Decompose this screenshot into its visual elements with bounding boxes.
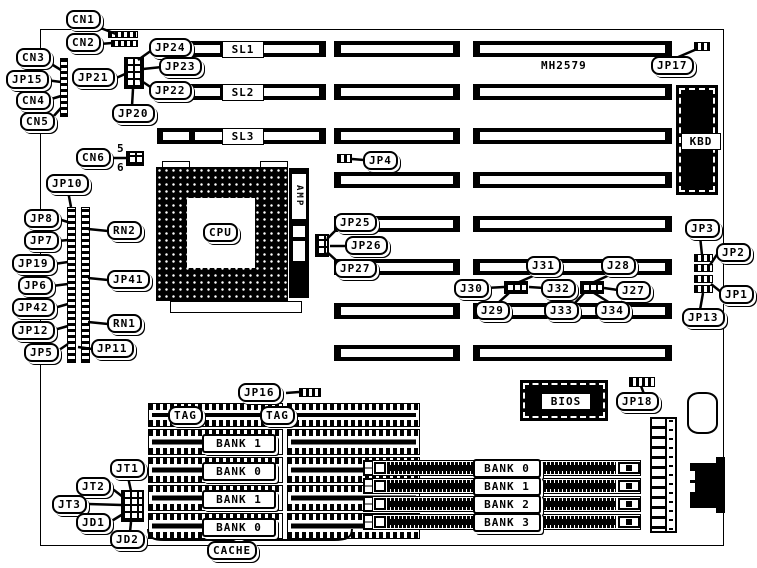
kbd-label: KBD <box>681 133 721 150</box>
callout-jp19: JP19 <box>12 254 55 273</box>
cache-tag-label: TAG <box>260 406 295 425</box>
simm-bank-label: BANK 3 <box>473 513 541 532</box>
callout-jp17: JP17 <box>651 56 694 75</box>
callout-jp27: JP27 <box>334 259 377 278</box>
callout-jp11: JP11 <box>91 339 134 358</box>
callout-rn2: RN2 <box>107 221 142 240</box>
slot-label-sl3: SL3 <box>222 128 264 145</box>
callout-j31: J31 <box>526 256 561 275</box>
callout-jp15: JP15 <box>6 70 49 89</box>
cache-bank-label: BANK 0 <box>202 462 276 481</box>
callout-j34: J34 <box>595 301 630 320</box>
callout-jp1: JP1 <box>719 285 754 304</box>
simm-bank-label: BANK 1 <box>473 477 541 496</box>
callout-jp12: JP12 <box>12 321 55 340</box>
callout-jp20: JP20 <box>112 104 155 123</box>
cache-title-label: CACHE <box>207 541 257 560</box>
callout-j28: J28 <box>601 256 636 275</box>
callout-j27: J27 <box>616 281 651 300</box>
cpu-label: CPU <box>203 223 238 242</box>
callout-jp5: JP5 <box>24 343 59 362</box>
callout-jp24: JP24 <box>149 38 192 57</box>
callout-jp42: JP42 <box>12 298 55 317</box>
cache-bank-label: BANK 0 <box>202 518 276 537</box>
callout-jt2: JT2 <box>76 477 111 496</box>
callout-jt1: JT1 <box>110 459 145 478</box>
callout-jp6: JP6 <box>18 276 53 295</box>
cache-bank-label: BANK 1 <box>202 490 276 509</box>
callout-jp25: JP25 <box>334 213 377 232</box>
callout-jp16: JP16 <box>238 383 281 402</box>
callout-jp3: JP3 <box>685 219 720 238</box>
callout-j33: J33 <box>544 301 579 320</box>
callout-jp22: JP22 <box>149 81 192 100</box>
motherboard-diagram: AMP <box>0 0 757 568</box>
cache-bank-label: BANK 1 <box>202 434 276 453</box>
callout-cn6: CN6 <box>76 148 111 167</box>
simm-bank-label: BANK 0 <box>473 459 541 478</box>
cache-tag-label: TAG <box>168 406 203 425</box>
callout-j29: J29 <box>475 301 510 320</box>
callout-cn1: CN1 <box>66 10 101 29</box>
callout-jd2: JD2 <box>110 530 145 549</box>
callout-jp21: JP21 <box>72 68 115 87</box>
callout-jp10: JP10 <box>46 174 89 193</box>
cn6-pin5-label: 5 <box>117 142 125 155</box>
slot-label-sl2: SL2 <box>222 84 264 101</box>
callout-j30: J30 <box>454 279 489 298</box>
callout-jt3: JT3 <box>52 495 87 514</box>
callout-cn3: CN3 <box>16 48 51 67</box>
callout-cn2: CN2 <box>66 33 101 52</box>
callout-jp26: JP26 <box>345 236 388 255</box>
board-part-number: MH2579 <box>541 59 587 72</box>
cn6-pin6-label: 6 <box>117 161 125 174</box>
callout-jp41: JP41 <box>107 270 150 289</box>
callout-cn5: CN5 <box>20 112 55 131</box>
slot-label-sl1: SL1 <box>222 41 264 58</box>
callout-j32: J32 <box>541 279 576 298</box>
callout-jp8: JP8 <box>24 209 59 228</box>
callout-jp23: JP23 <box>159 57 202 76</box>
callout-jp13: JP13 <box>682 308 725 327</box>
callout-jp18: JP18 <box>616 392 659 411</box>
callout-jd1: JD1 <box>76 513 111 532</box>
callout-cn4: CN4 <box>16 91 51 110</box>
simm-bank-label: BANK 2 <box>473 495 541 514</box>
callout-jp7: JP7 <box>24 231 59 250</box>
callout-jp4: JP4 <box>363 151 398 170</box>
bios-label: BIOS <box>541 393 591 410</box>
callout-rn1: RN1 <box>107 314 142 333</box>
callout-jp2: JP2 <box>716 243 751 262</box>
